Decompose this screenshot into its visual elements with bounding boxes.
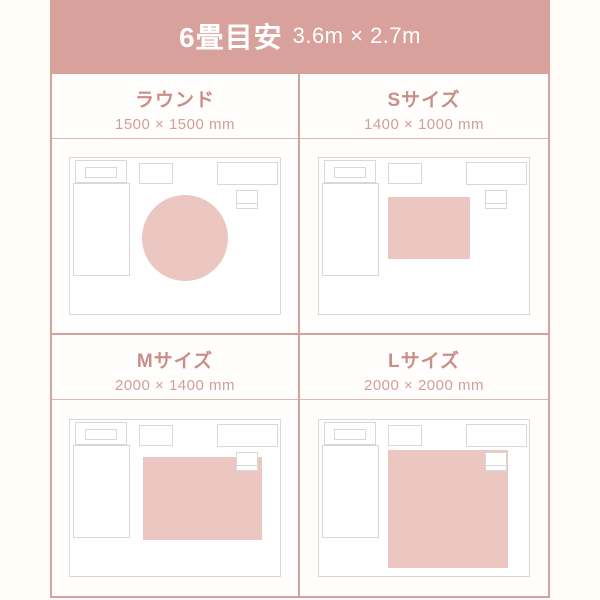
header-dimensions: 3.6m × 2.7m [293,23,421,49]
chair-seat-line [237,465,257,466]
desk [466,424,527,447]
size-grid: ラウンド 1500 × 1500 mm [50,72,550,598]
cell-l-size-text: 2000 × 2000 mm [300,377,548,394]
cell-l-diagram [300,400,548,596]
rug-s-shape [388,197,470,259]
cell-s-label-block: Sサイズ 1400 × 1000 mm [300,74,548,139]
bed-headboard [324,422,376,445]
desk [217,162,278,185]
cell-round-diagram [52,139,298,333]
header-title: 6畳目安 [179,16,283,56]
side-table [139,163,173,184]
cell-round: ラウンド 1500 × 1500 mm [52,74,300,335]
cell-m-size: Mサイズ 2000 × 1400 mm [52,335,300,596]
bed-headboard [75,422,127,445]
cell-l-title: Lサイズ [300,346,548,373]
bed-pillow [334,167,366,178]
room-diagram [318,419,530,577]
side-table [388,163,422,184]
room-diagram [69,419,281,577]
desk [217,424,278,447]
cell-l-label-block: Lサイズ 2000 × 2000 mm [300,335,548,400]
cell-m-size-text: 2000 × 1400 mm [52,377,298,394]
cell-round-label-block: ラウンド 1500 × 1500 mm [52,74,298,139]
cell-m-diagram [52,400,298,596]
side-table [388,425,422,446]
bed-pillow [334,429,366,440]
room-diagram [69,157,281,315]
desk [466,162,527,185]
rug-size-guide: 6畳目安 3.6m × 2.7m ラウンド 1500 × 1500 mm [0,0,600,600]
chair [236,452,258,471]
cell-s-size-text: 1400 × 1000 mm [300,116,548,133]
cell-round-size: 1500 × 1500 mm [52,116,298,133]
side-table [139,425,173,446]
rug-round-shape [142,195,228,281]
cell-s-diagram [300,139,548,333]
chair [485,452,507,471]
cell-l-size: Lサイズ 2000 × 2000 mm [300,335,548,596]
cell-s-size: Sサイズ 1400 × 1000 mm [300,74,548,335]
header-banner: 6畳目安 3.6m × 2.7m [50,0,550,72]
cell-m-title: Mサイズ [52,346,298,373]
bed-pillow [85,429,117,440]
chair-seat-line [486,465,506,466]
bed-pillow [85,167,117,178]
bed [322,445,379,538]
chair [485,190,507,209]
bed-headboard [75,160,127,183]
cell-m-label-block: Mサイズ 2000 × 1400 mm [52,335,298,400]
bed-headboard [324,160,376,183]
chair [236,190,258,209]
chair-seat-line [237,203,257,204]
bed [73,445,130,538]
bed [73,183,130,276]
cell-round-title: ラウンド [52,85,298,112]
cell-s-title: Sサイズ [300,85,548,112]
room-diagram [318,157,530,315]
chair-seat-line [486,203,506,204]
bed [322,183,379,276]
